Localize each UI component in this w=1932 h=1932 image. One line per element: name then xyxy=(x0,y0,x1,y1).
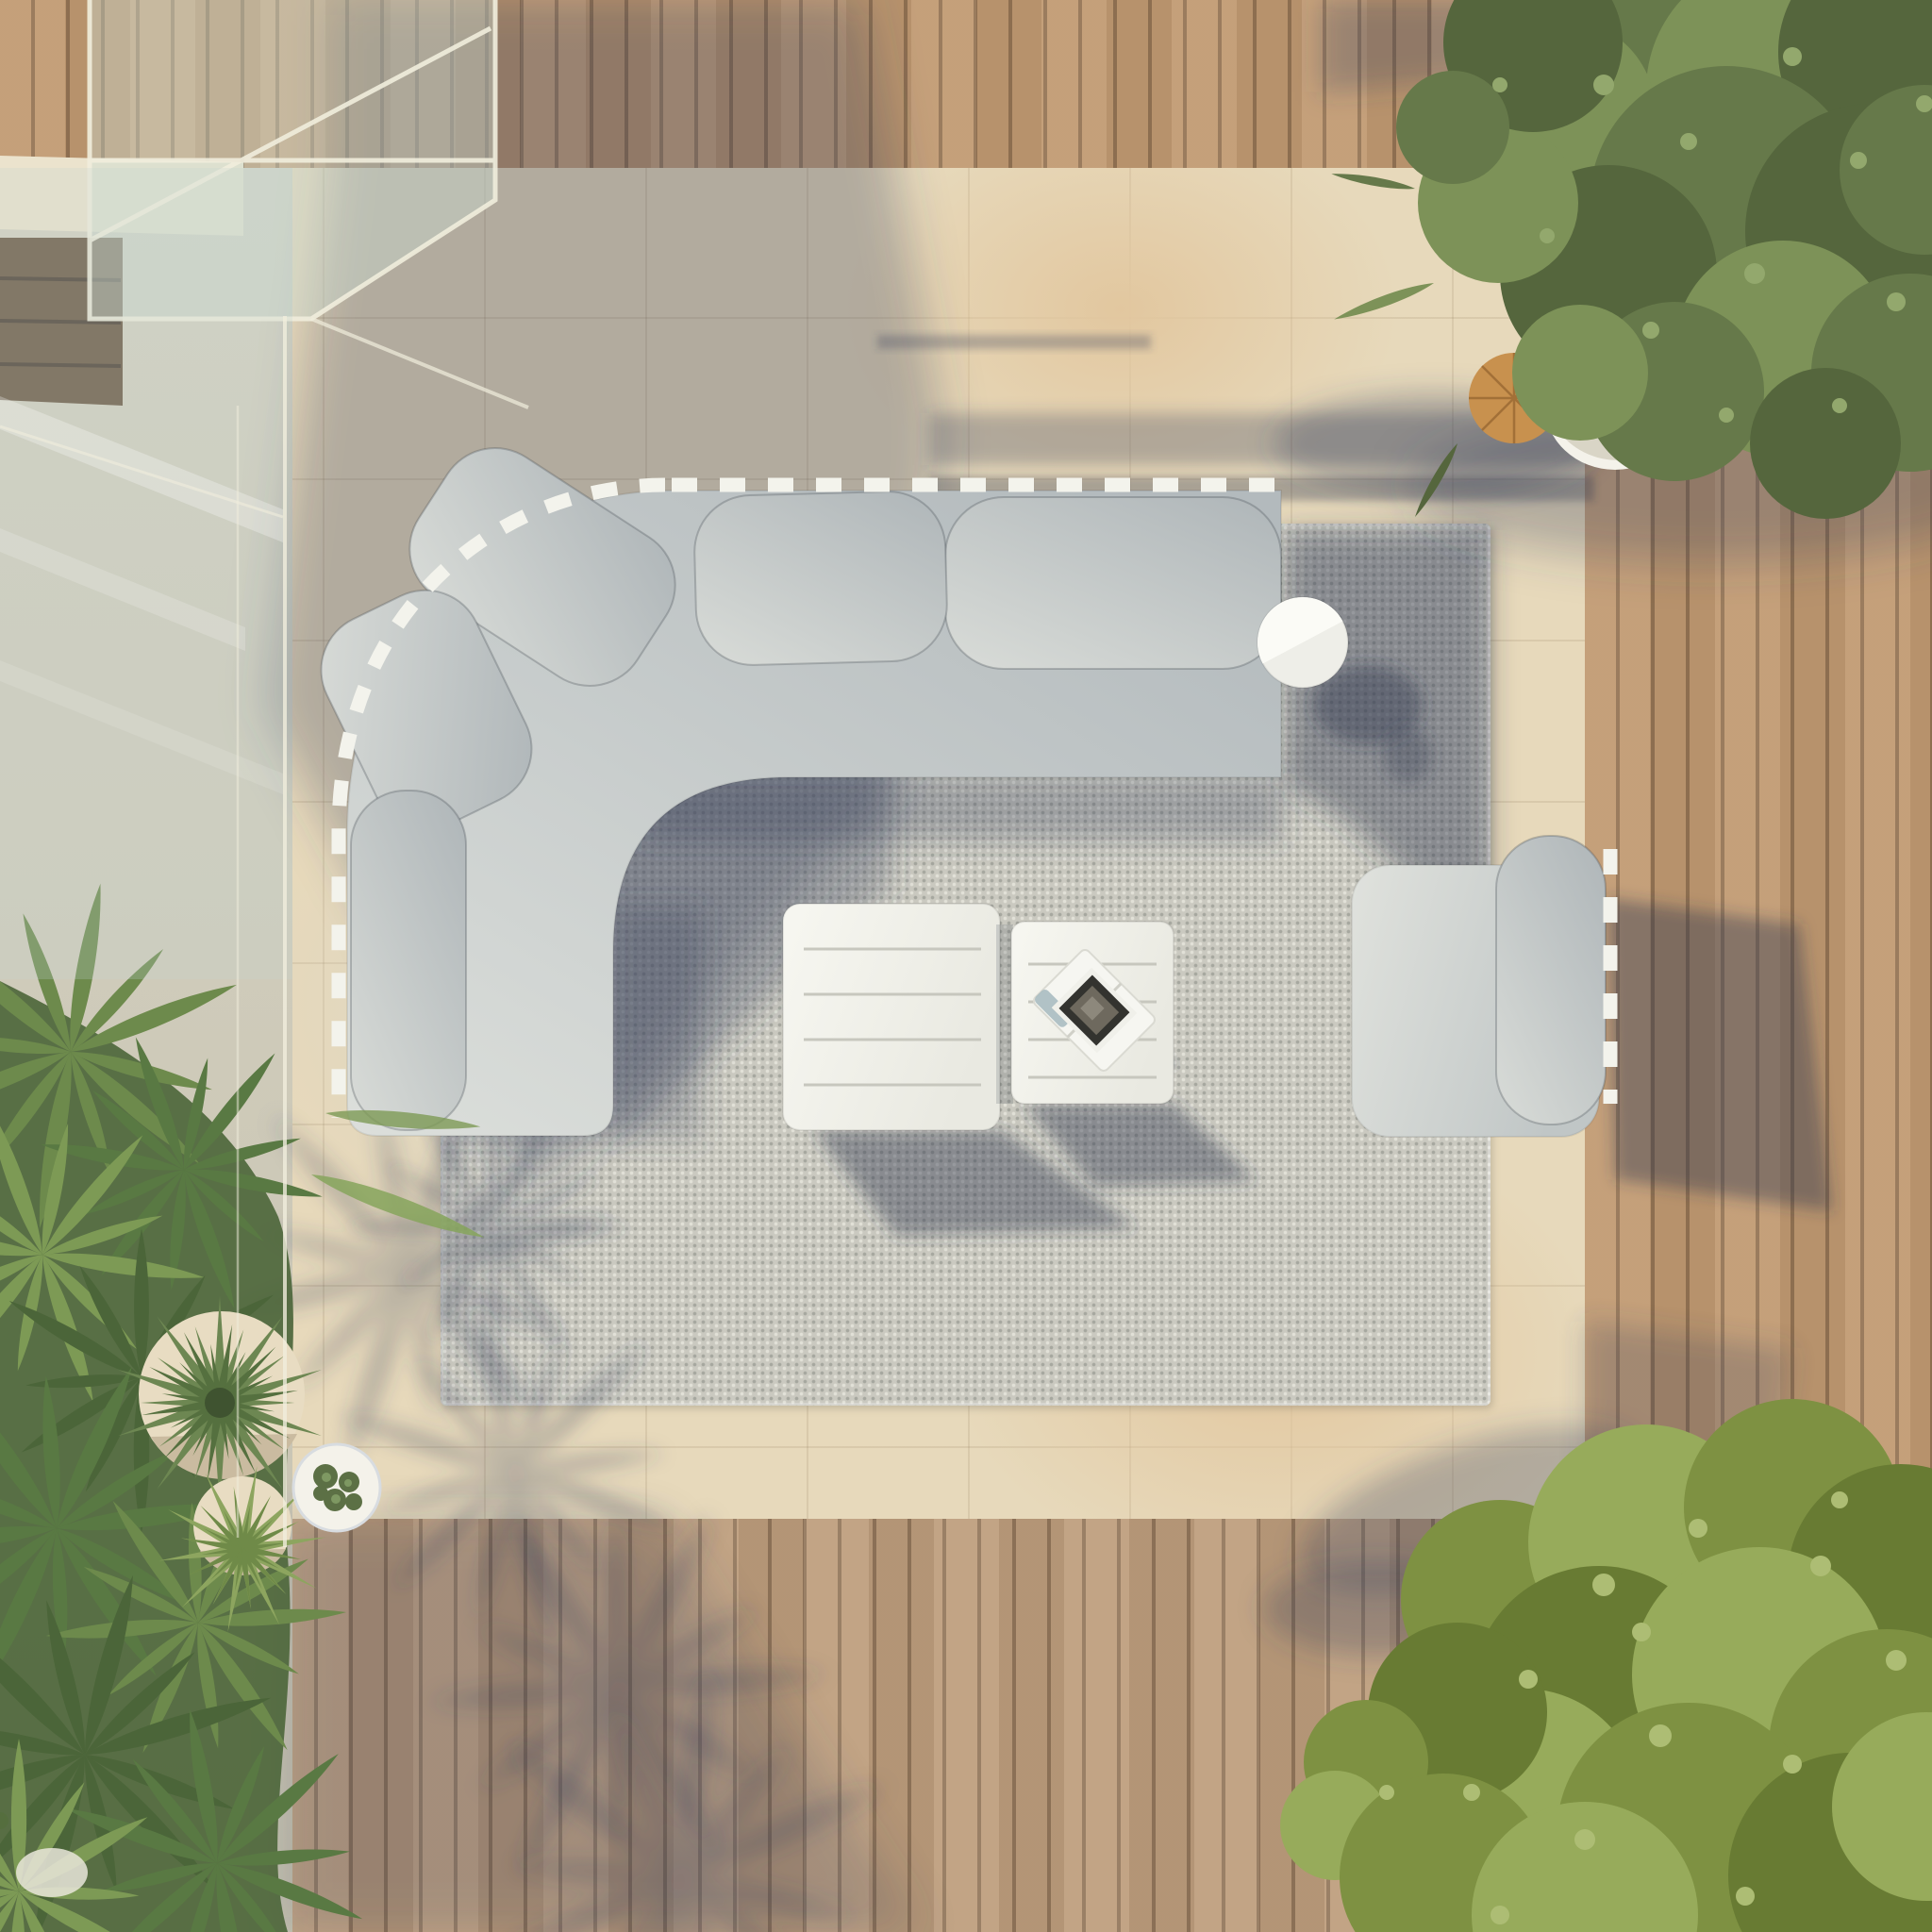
succulent-pot xyxy=(293,1444,380,1531)
armchair xyxy=(1352,836,1610,1137)
scene-artwork xyxy=(0,0,1932,1932)
coffee-table-large xyxy=(783,904,1000,1130)
patio-scene xyxy=(0,0,1932,1932)
coffee-tables xyxy=(783,904,1174,1130)
